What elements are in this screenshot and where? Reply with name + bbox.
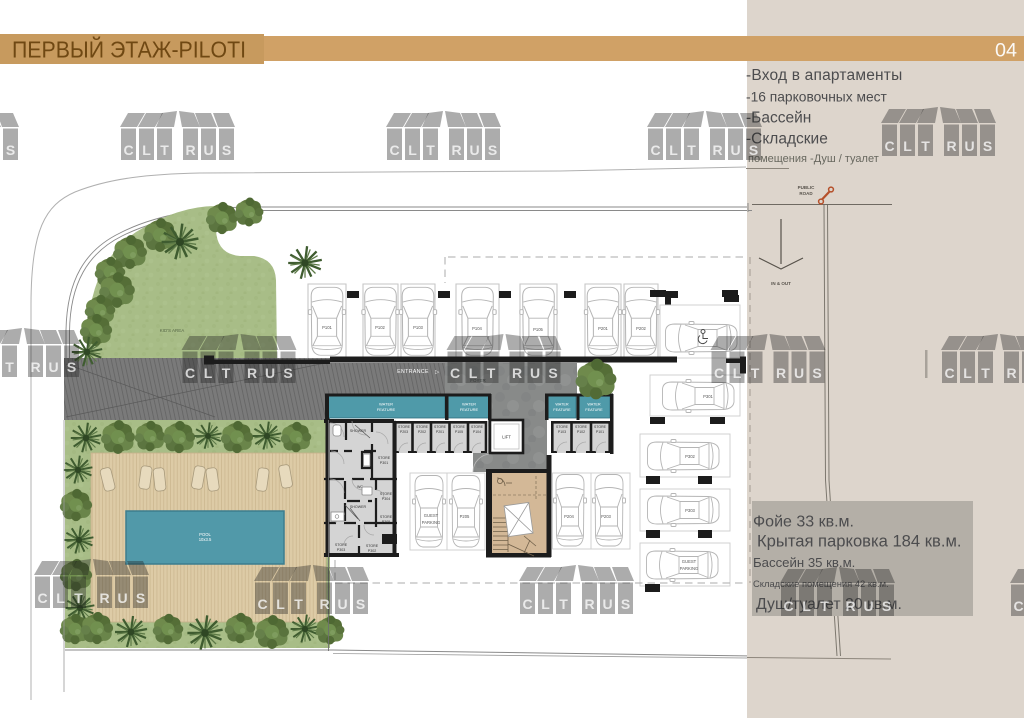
svg-text:P204: P204 (564, 514, 574, 519)
svg-text:ПЕРВЫЙ ЭТАЖ-PILOTI: ПЕРВЫЙ ЭТАЖ-PILOTI (12, 35, 246, 62)
svg-text:P202: P202 (418, 430, 426, 434)
svg-text:P301: P301 (380, 461, 388, 465)
svg-text:GUEST: GUEST (424, 513, 439, 518)
svg-text:P105: P105 (455, 430, 463, 434)
svg-text:P301: P301 (703, 394, 713, 399)
svg-text:WATER: WATER (379, 402, 393, 407)
svg-text:Фойе 33 кв.м.: Фойе 33 кв.м. (753, 514, 854, 531)
svg-text:P303: P303 (685, 508, 695, 513)
svg-text:WATER: WATER (555, 403, 569, 407)
svg-text:P203: P203 (400, 430, 408, 434)
svg-text:FEATURE: FEATURE (585, 408, 603, 412)
svg-text:FEATURE: FEATURE (553, 408, 571, 412)
svg-text:PARKING: PARKING (680, 566, 699, 571)
svg-text:P302: P302 (685, 454, 695, 459)
svg-text:P302: P302 (368, 549, 376, 553)
svg-text:KID'S AREA: KID'S AREA (160, 328, 185, 333)
svg-text:LIFT: LIFT (502, 435, 511, 440)
svg-text:P104: P104 (473, 430, 481, 434)
svg-text:P303: P303 (337, 548, 345, 552)
svg-text:FEATURE: FEATURE (460, 407, 479, 412)
svg-text:GUEST: GUEST (682, 559, 697, 564)
svg-text:STORE: STORE (575, 425, 588, 429)
svg-text:P103: P103 (558, 430, 566, 434)
svg-text:помещения -Душ / туалет: помещения -Душ / туалет (748, 153, 879, 165)
svg-text:-16 парковочных мест: -16 парковочных мест (746, 90, 888, 105)
svg-text:P102: P102 (577, 430, 585, 434)
svg-text:P103: P103 (413, 325, 423, 330)
svg-text:STORE: STORE (556, 425, 569, 429)
svg-text:P305: P305 (382, 520, 390, 524)
svg-text:STORE: STORE (416, 425, 429, 429)
svg-text:PUBLIC: PUBLIC (798, 185, 816, 190)
svg-text:STORE: STORE (453, 425, 466, 429)
svg-text:IN & OUT: IN & OUT (771, 281, 791, 286)
svg-text:P203: P203 (601, 514, 611, 519)
svg-text:P101: P101 (596, 430, 604, 434)
svg-text:-Вход в апартаменты: -Вход в апартаменты (746, 67, 902, 84)
svg-text:Крытая парковка 184 кв.м.: Крытая парковка 184 кв.м. (757, 532, 961, 551)
svg-text:P201: P201 (598, 326, 608, 331)
svg-text:STORE: STORE (380, 515, 393, 519)
svg-text:P104: P104 (472, 326, 482, 331)
svg-text:STORE: STORE (335, 543, 348, 547)
svg-text:ENTRANCE: ENTRANCE (397, 369, 429, 375)
svg-text:P202: P202 (636, 326, 646, 331)
svg-text:P101: P101 (322, 325, 332, 330)
svg-text:P105: P105 (533, 327, 543, 332)
svg-text:SHOWER: SHOWER (350, 505, 367, 509)
svg-text:STORE: STORE (398, 425, 411, 429)
svg-text:FEATURE: FEATURE (377, 407, 396, 412)
svg-text:04: 04 (995, 40, 1017, 62)
svg-text:P201: P201 (436, 430, 444, 434)
svg-text:STORE: STORE (378, 456, 391, 460)
svg-text:P205: P205 (460, 514, 470, 519)
svg-text:STORE: STORE (434, 425, 447, 429)
svg-text:10x3.5: 10x3.5 (199, 537, 212, 542)
svg-text:P102: P102 (375, 325, 385, 330)
svg-text:STORE: STORE (471, 425, 484, 429)
svg-text:WATER: WATER (462, 402, 476, 407)
svg-text:STORE: STORE (594, 425, 607, 429)
svg-text:STORE: STORE (380, 492, 393, 496)
svg-text:PARKING: PARKING (422, 520, 441, 525)
svg-text:ROAD: ROAD (799, 191, 813, 196)
svg-text:P304: P304 (382, 497, 390, 501)
svg-text:WATER: WATER (587, 403, 601, 407)
svg-text:STORE: STORE (366, 544, 379, 548)
